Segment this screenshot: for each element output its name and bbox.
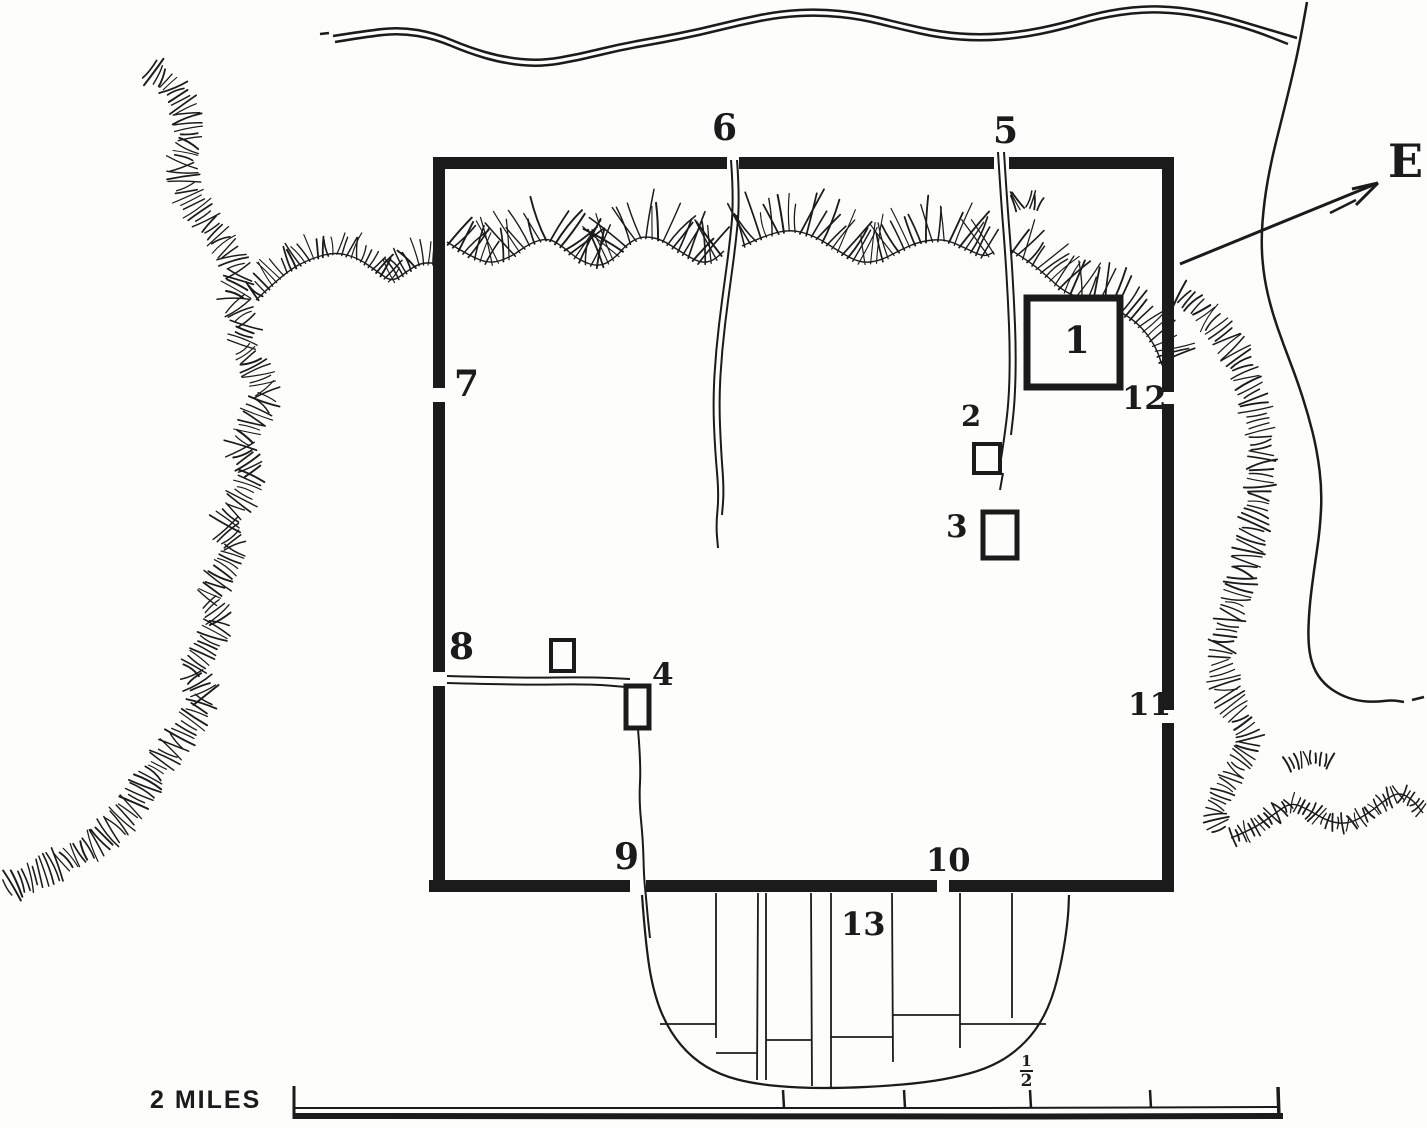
streams-and-roads — [447, 152, 1016, 938]
map-drawing — [0, 0, 1427, 1128]
city-wall — [429, 157, 1174, 892]
terrain-hachures — [3, 59, 1426, 901]
buildings — [551, 298, 1120, 728]
east-arrow — [1180, 183, 1378, 264]
suburb-13 — [642, 893, 1069, 1088]
scale-bar — [294, 1086, 1283, 1119]
rivers — [320, 2, 1424, 702]
map-figure: 6 5 7 8 9 10 11 12 1 2 3 4 13 E 2 MILES … — [0, 0, 1427, 1128]
